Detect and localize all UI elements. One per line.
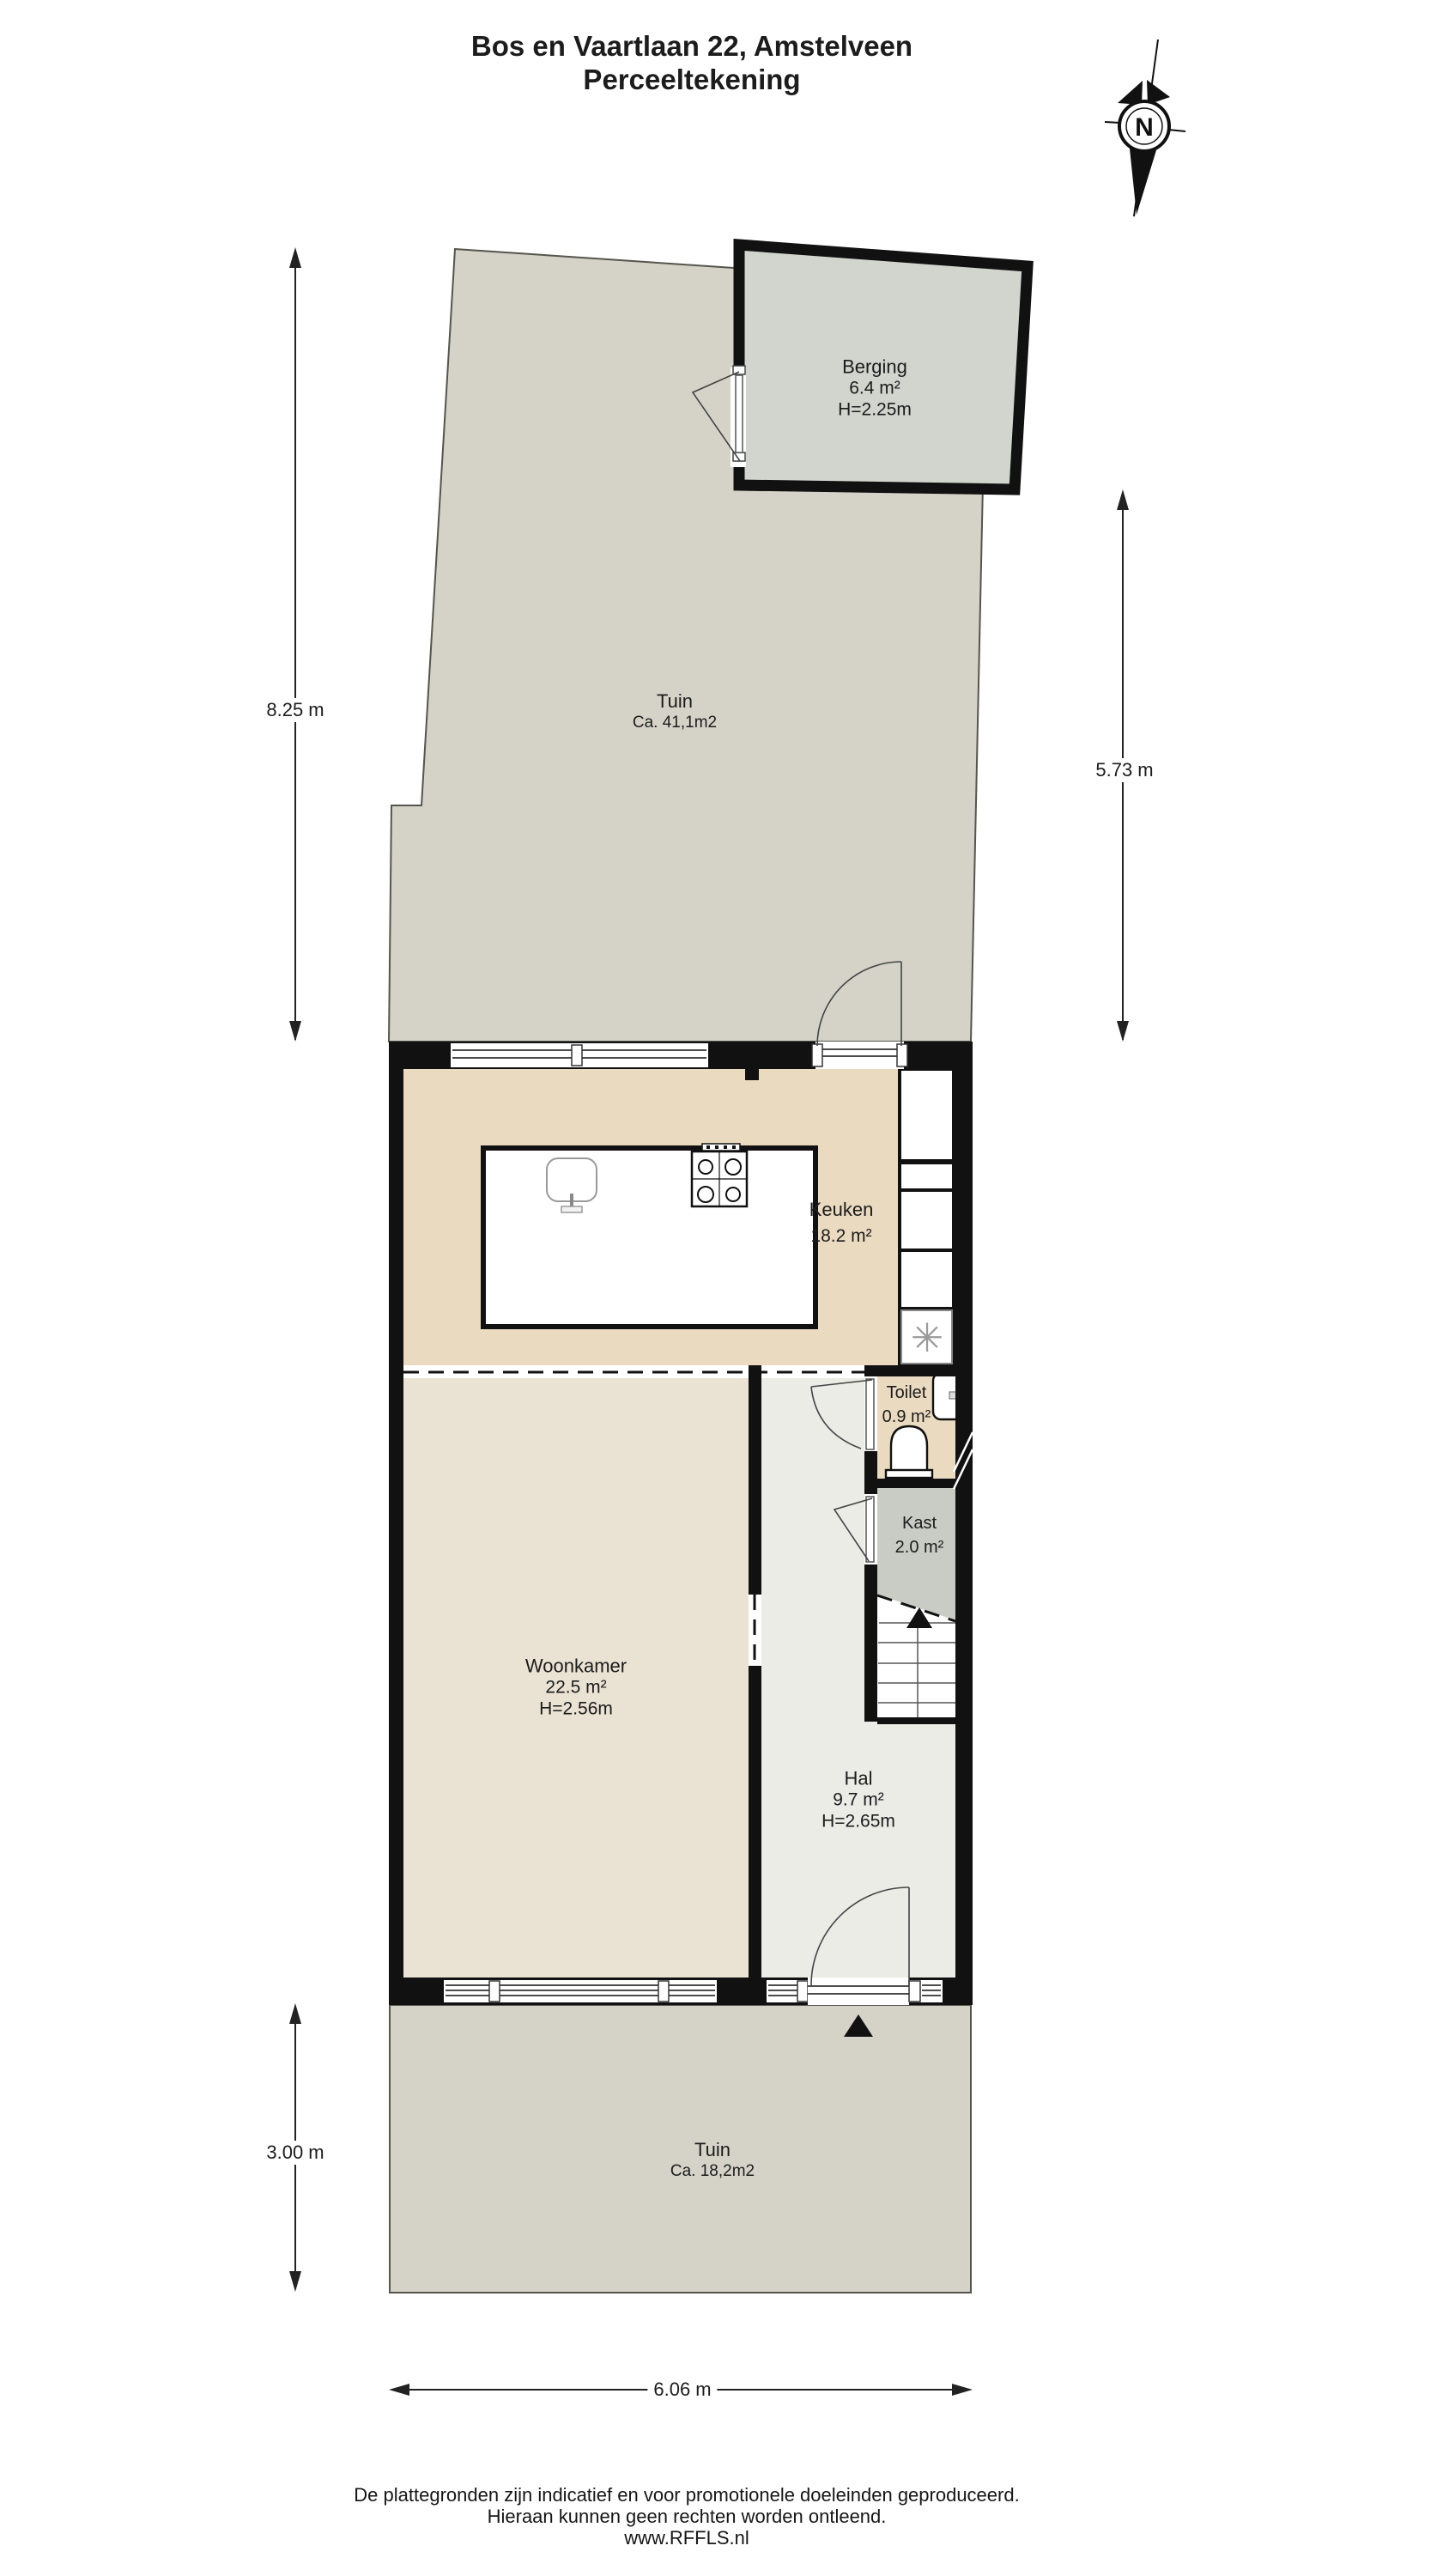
woonkamer-window <box>444 1980 717 2002</box>
keuken-woonkamer-open-boundary <box>403 1365 864 1378</box>
island-stove-icon <box>692 1144 747 1206</box>
berging-label: Berging 6.4 m² H=2.25m <box>838 356 912 421</box>
dim-3-00: 3.00 m <box>260 2141 330 2165</box>
keuken-label: Keuken 18.2 m² <box>809 1196 874 1249</box>
wall-stub-pier <box>745 1069 759 1080</box>
title-subtitle: Perceeltekening <box>471 63 912 96</box>
tuin-top-label: Tuin Ca. 41,1m2 <box>633 690 717 733</box>
kast-label: Kast 2.0 m² <box>895 1511 944 1559</box>
page-title: Bos en Vaartlaan 22, Amstelveen Perceelt… <box>471 29 912 96</box>
tuin-bottom-label: Tuin Ca. 18,2m2 <box>670 2139 755 2182</box>
back-door-opening <box>815 1042 904 1069</box>
front-door-opening <box>808 1978 909 2005</box>
floorplan-page: N <box>0 0 1449 2576</box>
toilet-label: Toilet 0.9 m² <box>882 1381 931 1429</box>
toilet-door-leaf <box>866 1379 874 1449</box>
berging-door-leaf <box>736 375 743 453</box>
floorplan-drawing: N <box>0 0 1449 2576</box>
north-compass-icon: N <box>1105 39 1185 216</box>
snowflake-icon: ✳ <box>911 1315 944 1360</box>
hal-label: Hal 9.7 m² H=2.65m <box>822 1768 895 1832</box>
kitchen-cabinets: ✳ <box>898 1067 955 1367</box>
footer-website: www.RFFLS.nl <box>354 2527 1019 2549</box>
title-address: Bos en Vaartlaan 22, Amstelveen <box>471 29 912 63</box>
compass-north-label: N <box>1135 113 1154 142</box>
wc-base <box>886 1470 932 1478</box>
wc-icon <box>891 1426 927 1475</box>
dim-6-06: 6.06 m <box>647 2378 717 2402</box>
woonkamer-label: Woonkamer 22.5 m² H=2.56m <box>525 1656 627 1720</box>
footer-disclaimer: De plattegronden zijn indicatief en voor… <box>354 2484 1019 2549</box>
dim-8-25: 8.25 m <box>260 698 330 722</box>
dim-5-73: 5.73 m <box>1089 758 1159 782</box>
kast-door-leaf <box>866 1497 874 1562</box>
kitchen-island <box>483 1144 815 1327</box>
